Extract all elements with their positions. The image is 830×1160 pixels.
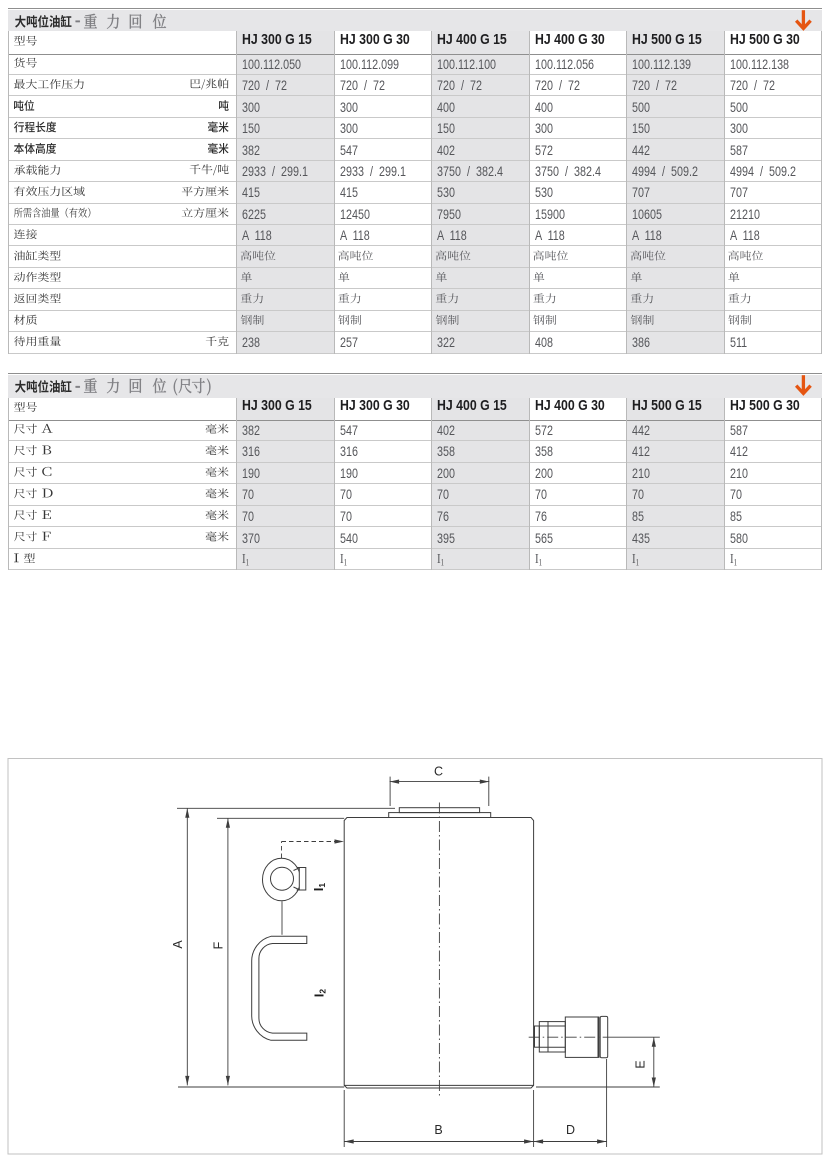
svg-text:I2: I2 (312, 989, 328, 998)
svg-text:A: A (171, 940, 185, 949)
svg-text:B: B (434, 1123, 442, 1137)
svg-text:F: F (212, 941, 226, 949)
svg-text:I1: I1 (311, 883, 327, 892)
svg-text:C: C (434, 765, 443, 779)
svg-text:D: D (566, 1123, 575, 1137)
svg-text:E: E (634, 1060, 648, 1068)
